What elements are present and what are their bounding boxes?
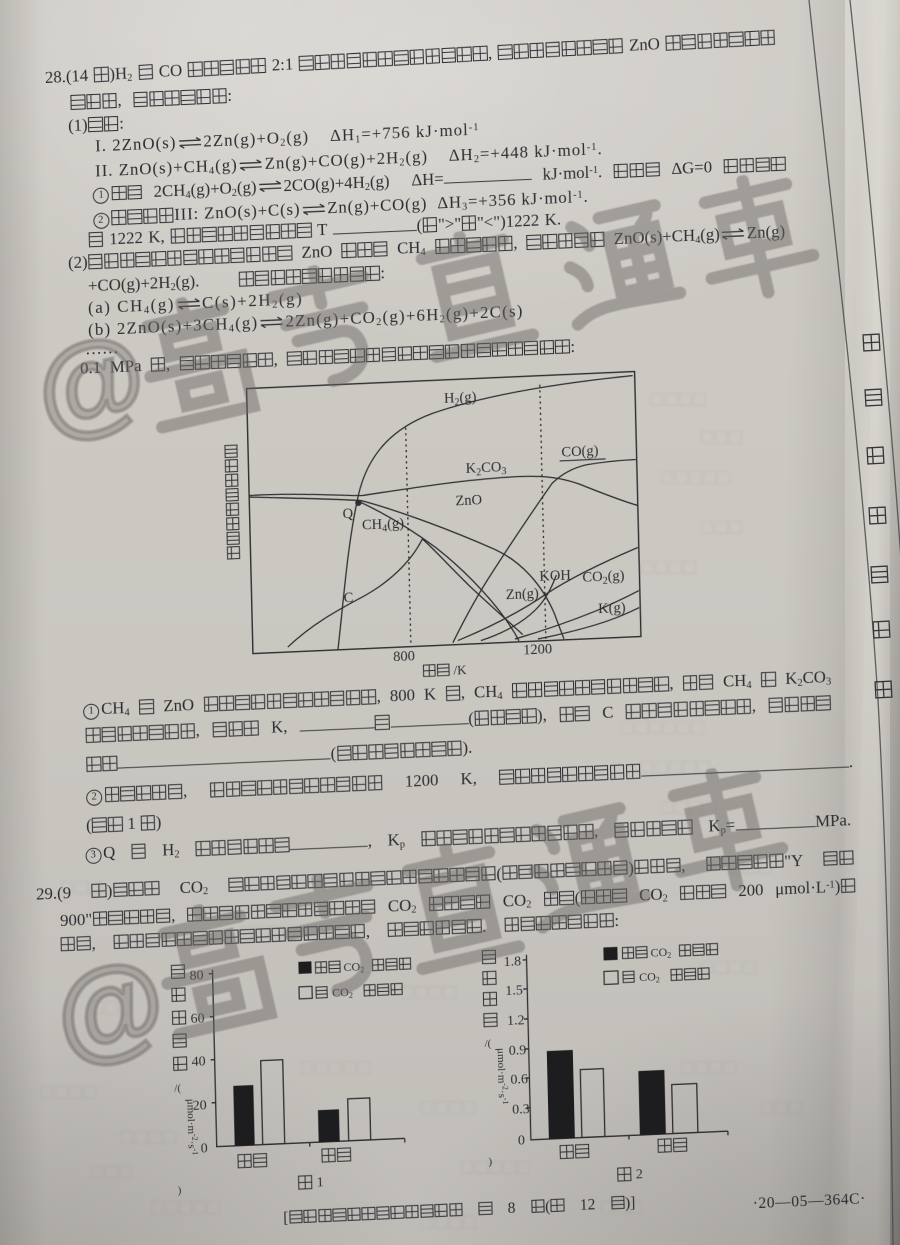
svg-text:0.6: 0.6 <box>510 1072 528 1088</box>
svg-text:2: 2 <box>636 1167 643 1182</box>
svg-text:20: 20 <box>192 1098 206 1114</box>
svg-text:ZnO: ZnO <box>455 492 482 509</box>
svg-text:CO(g): CO(g) <box>561 443 599 461</box>
svg-text:1.2: 1.2 <box>507 1013 525 1029</box>
svg-text:/(: /( <box>174 1083 181 1095</box>
svg-text:K2CO3: K2CO3 <box>465 459 506 479</box>
svg-text:800: 800 <box>393 648 415 665</box>
svg-text:0: 0 <box>518 1133 525 1148</box>
svg-text:μmol·m-2·s-1: μmol·m-2·s-1 <box>495 1048 510 1105</box>
svg-text:1: 1 <box>316 1175 323 1190</box>
svg-text:1200: 1200 <box>523 641 552 658</box>
svg-text:CH4(g): CH4(g) <box>362 516 405 536</box>
svg-text:Zn(g): Zn(g) <box>505 586 539 603</box>
svg-text:): ) <box>488 1156 492 1168</box>
svg-text:0.3: 0.3 <box>512 1102 530 1118</box>
svg-text:KOH: KOH <box>539 567 571 584</box>
svg-text:1.5: 1.5 <box>505 983 523 999</box>
svg-text:/(: /( <box>484 1037 491 1049</box>
svg-text:0.9: 0.9 <box>509 1043 527 1059</box>
svg-text:40: 40 <box>191 1054 205 1070</box>
svg-text:/K: /K <box>453 662 467 678</box>
svg-text:CO2: CO2 <box>639 969 660 985</box>
svg-text:CO2: CO2 <box>650 945 671 961</box>
svg-text:K(g): K(g) <box>598 600 626 617</box>
svg-text:Q: Q <box>342 506 353 522</box>
svg-text:0: 0 <box>200 1141 207 1156</box>
svg-text:H2(g): H2(g) <box>444 389 477 408</box>
svg-text:): ) <box>177 1185 181 1197</box>
svg-text:CO2(g): CO2(g) <box>582 568 625 588</box>
svg-text:C: C <box>343 590 353 606</box>
